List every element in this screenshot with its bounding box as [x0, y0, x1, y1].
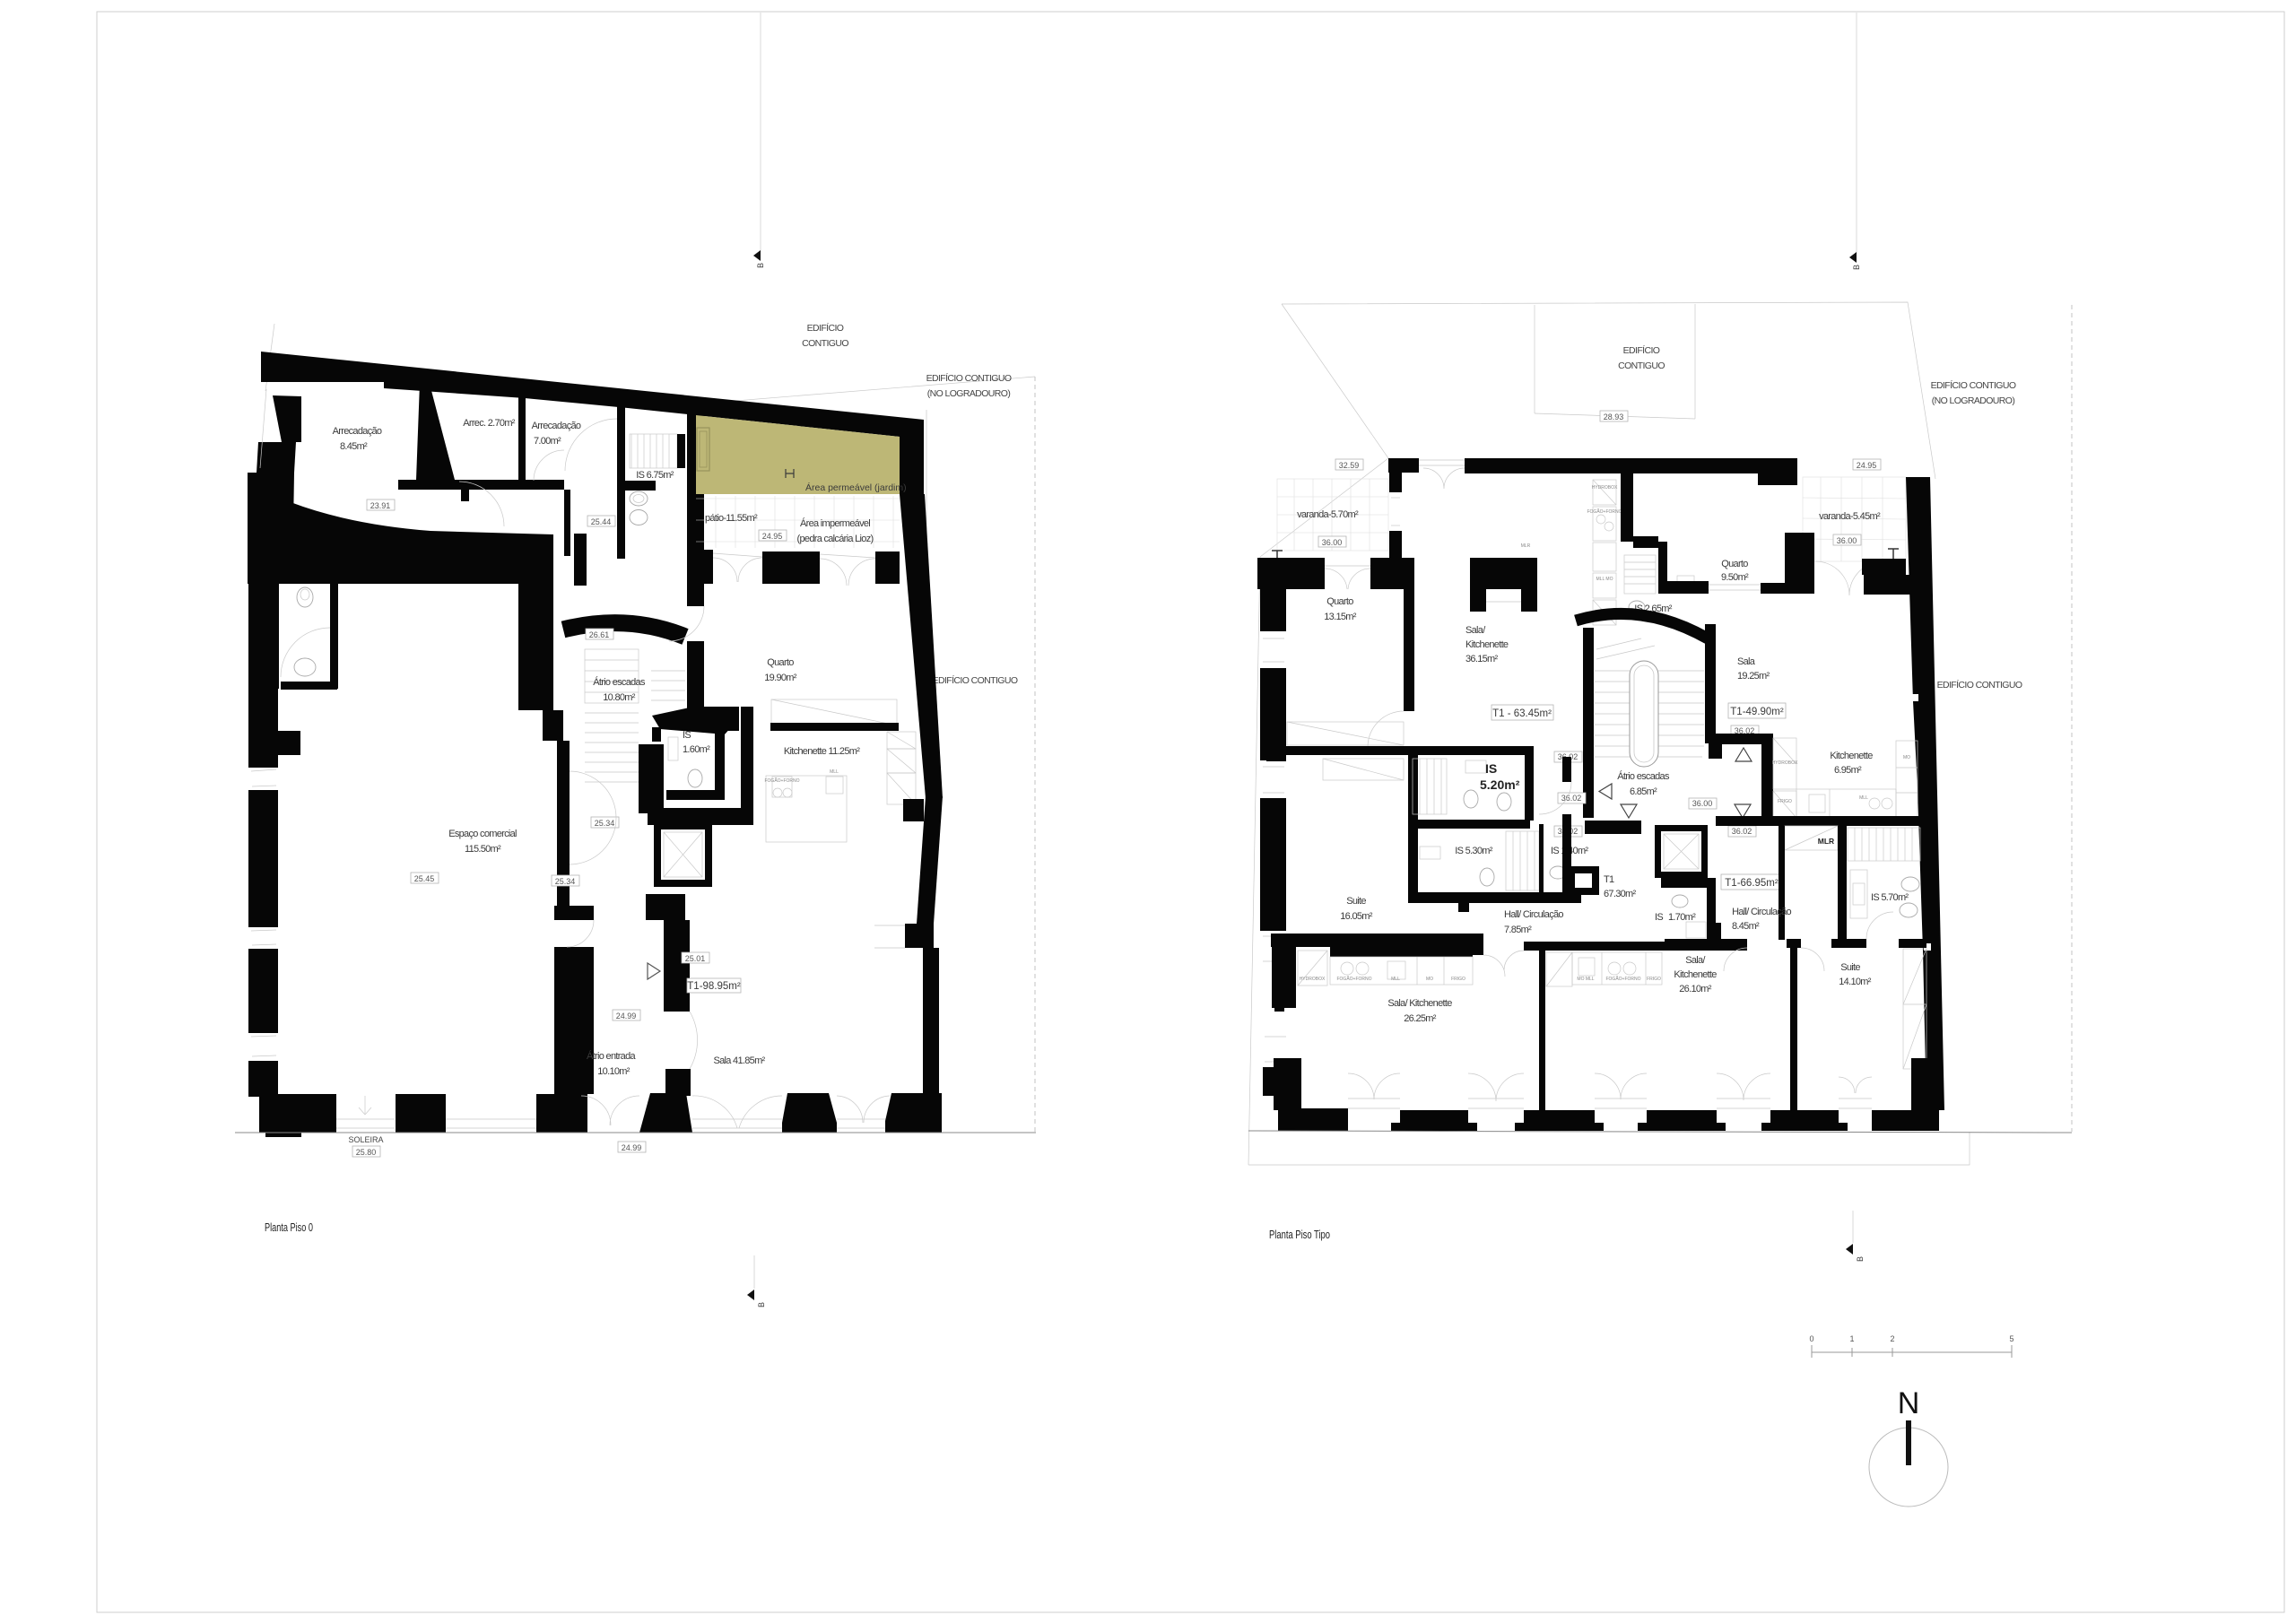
- svg-text:HYDROBOX: HYDROBOX: [1592, 485, 1618, 491]
- svg-text:Hall/ Circulação: Hall/ Circulação: [1504, 909, 1563, 920]
- svg-text:67.30m²: 67.30m²: [1604, 889, 1636, 899]
- svg-text:T1 - 63.45m²: T1 - 63.45m²: [1492, 708, 1552, 719]
- svg-text:Arrecadação: Arrecadação: [333, 426, 382, 437]
- svg-text:IS: IS: [1655, 912, 1663, 923]
- svg-text:Átrio escadas: Átrio escadas: [593, 676, 646, 688]
- svg-text:25.34: 25.34: [555, 877, 576, 886]
- svg-text:(NO LOGRADOURO): (NO LOGRADOURO): [1932, 395, 2015, 406]
- svg-text:25.01: 25.01: [685, 954, 706, 963]
- svg-text:Suite: Suite: [1346, 896, 1366, 907]
- svg-text:Planta Piso 0: Planta Piso 0: [265, 1220, 313, 1234]
- svg-text:Sala: Sala: [1737, 656, 1756, 667]
- svg-text:Hall/ Circulação: Hall/ Circulação: [1732, 907, 1791, 917]
- svg-text:Arrecadação: Arrecadação: [532, 421, 581, 431]
- svg-text:EDIFÍCIO CONTIGUO: EDIFÍCIO CONTIGUO: [1937, 679, 2022, 690]
- svg-text:25.34: 25.34: [595, 819, 615, 828]
- svg-text:Kitchenette: Kitchenette: [1674, 969, 1717, 980]
- svg-text:Área permeável (jardim): Área permeável (jardim): [805, 482, 907, 493]
- svg-text:(pedra calcária Lioz): (pedra calcária Lioz): [797, 534, 874, 544]
- svg-text:Kitchenette: Kitchenette: [1830, 751, 1873, 761]
- svg-text:Átrio entrada: Átrio entrada: [587, 1050, 636, 1062]
- svg-text:MLL: MLL: [1391, 977, 1400, 982]
- svg-text:EDIFÍCIO: EDIFÍCIO: [807, 322, 844, 334]
- svg-text:Kitchenette: Kitchenette: [1465, 639, 1509, 650]
- svg-text:Arrec. 2.70m²: Arrec. 2.70m²: [463, 418, 516, 429]
- svg-text:T1: T1: [1604, 874, 1614, 885]
- svg-text:14.10m²: 14.10m²: [1839, 977, 1871, 987]
- svg-text:SOLEIRA: SOLEIRA: [348, 1135, 383, 1144]
- svg-text:EDIFÍCIO CONTIGUO: EDIFÍCIO CONTIGUO: [1931, 379, 2016, 391]
- svg-text:FOGÃO+FORNO: FOGÃO+FORNO: [1336, 976, 1371, 982]
- svg-text:19.25m²: 19.25m²: [1737, 671, 1770, 682]
- svg-text:0: 0: [1809, 1334, 1813, 1343]
- svg-text:Suite: Suite: [1840, 962, 1860, 973]
- svg-text:Kitchenette 11.25m²: Kitchenette 11.25m²: [784, 746, 860, 757]
- svg-text:24.95: 24.95: [762, 532, 783, 541]
- svg-text:2: 2: [1890, 1334, 1894, 1343]
- svg-text:CONTIGUO: CONTIGUO: [1618, 360, 1665, 371]
- svg-text:HYDROBOX: HYDROBOX: [1772, 760, 1798, 766]
- svg-text:24.99: 24.99: [616, 1012, 637, 1020]
- svg-text:MO: MO: [1903, 755, 1910, 760]
- svg-text:HYDROBOX: HYDROBOX: [1300, 977, 1326, 982]
- svg-text:(NO LOGRADOURO): (NO LOGRADOURO): [927, 388, 1011, 399]
- svg-text:Quarto: Quarto: [1326, 596, 1353, 607]
- svg-text:Sala/ Kitchenette: Sala/ Kitchenette: [1387, 998, 1452, 1009]
- svg-text:MO MLL: MO MLL: [1577, 977, 1594, 982]
- svg-text:10.10m²: 10.10m²: [597, 1066, 630, 1077]
- svg-text:Área impermeável: Área impermeável: [800, 517, 870, 529]
- svg-text:115.50m²: 115.50m²: [465, 844, 501, 855]
- svg-text:MLL: MLL: [830, 769, 839, 775]
- svg-text:IS 5.30m²: IS 5.30m²: [1455, 846, 1492, 856]
- svg-text:6.85m²: 6.85m²: [1630, 786, 1657, 797]
- svg-text:B: B: [757, 1302, 766, 1307]
- svg-text:EDIFÍCIO: EDIFÍCIO: [1623, 344, 1660, 356]
- svg-text:IS: IS: [683, 730, 691, 741]
- svg-text:varanda-5.45m²: varanda-5.45m²: [1819, 511, 1881, 522]
- svg-text:Sala 41.85m²: Sala 41.85m²: [713, 1055, 765, 1066]
- svg-text:Espaço comercial: Espaço comercial: [448, 829, 517, 839]
- svg-text:36.15m²: 36.15m²: [1465, 654, 1498, 664]
- svg-text:FRIGO: FRIGO: [1451, 977, 1465, 982]
- svg-text:Sala/: Sala/: [1685, 955, 1706, 966]
- svg-text:Quarto: Quarto: [1721, 559, 1748, 569]
- svg-text:5.20m²: 5.20m²: [1480, 777, 1520, 792]
- svg-text:FOGÃO+FORNO: FOGÃO+FORNO: [764, 777, 799, 784]
- svg-text:25.80: 25.80: [356, 1148, 377, 1157]
- svg-text:36.02: 36.02: [1561, 794, 1582, 803]
- svg-text:EDIFÍCIO CONTIGUO: EDIFÍCIO CONTIGUO: [926, 372, 1012, 384]
- svg-text:FRIGO: FRIGO: [1647, 977, 1661, 982]
- svg-text:IS: IS: [1485, 761, 1497, 776]
- svg-text:24.99: 24.99: [622, 1143, 642, 1152]
- svg-text:N: N: [1898, 1386, 1920, 1420]
- svg-text:36.00: 36.00: [1837, 536, 1857, 545]
- svg-text:5: 5: [2009, 1334, 2013, 1343]
- svg-text:CONTIGUO: CONTIGUO: [802, 338, 848, 349]
- svg-text:Planta Piso Tipo: Planta Piso Tipo: [1269, 1228, 1330, 1241]
- svg-text:13.15m²: 13.15m²: [1324, 612, 1356, 622]
- svg-text:25.44: 25.44: [591, 517, 612, 526]
- svg-text:32.59: 32.59: [1339, 461, 1360, 470]
- svg-text:Átrio escadas: Átrio escadas: [1617, 770, 1670, 782]
- svg-text:7.85m²: 7.85m²: [1504, 925, 1532, 935]
- svg-text:Quarto: Quarto: [767, 657, 794, 668]
- svg-text:36.00: 36.00: [1692, 799, 1713, 808]
- svg-text:1: 1: [1849, 1334, 1854, 1343]
- svg-text:10.80m²: 10.80m²: [603, 692, 635, 703]
- svg-text:36.00: 36.00: [1322, 538, 1343, 547]
- svg-text:MLR: MLR: [1818, 837, 1834, 846]
- svg-text:EDIFÍCIO CONTIGUO: EDIFÍCIO CONTIGUO: [933, 674, 1018, 686]
- svg-text:pátio-11.55m²: pátio-11.55m²: [705, 513, 758, 524]
- svg-text:FOGÃO+FORNO: FOGÃO+FORNO: [1605, 976, 1640, 982]
- svg-text:28.93: 28.93: [1604, 413, 1624, 421]
- svg-text:IS 5.70m²: IS 5.70m²: [1871, 892, 1909, 903]
- svg-text:Sala/: Sala/: [1465, 625, 1486, 636]
- svg-text:MO: MO: [1426, 977, 1433, 982]
- svg-text:7.00m²: 7.00m²: [534, 436, 561, 447]
- svg-text:1.70m²: 1.70m²: [1668, 912, 1696, 923]
- svg-text:B: B: [1856, 1256, 1865, 1262]
- svg-text:26.10m²: 26.10m²: [1679, 984, 1711, 994]
- svg-text:26.25m²: 26.25m²: [1404, 1013, 1436, 1024]
- svg-text:B: B: [1852, 265, 1861, 270]
- svg-text:varanda-5.70m²: varanda-5.70m²: [1297, 509, 1359, 520]
- svg-text:T1-66.95m²: T1-66.95m²: [1725, 878, 1779, 889]
- svg-text:16.05m²: 16.05m²: [1340, 911, 1372, 922]
- svg-text:8.45m²: 8.45m²: [340, 441, 368, 452]
- svg-text:B: B: [756, 263, 765, 268]
- svg-text:FRIGO: FRIGO: [1778, 799, 1792, 804]
- svg-text:26.61: 26.61: [589, 630, 610, 639]
- svg-text:23.91: 23.91: [370, 501, 391, 510]
- svg-text:IS 6.75m²: IS 6.75m²: [636, 470, 674, 481]
- svg-text:MLL MO: MLL MO: [1596, 577, 1613, 582]
- svg-text:MLL: MLL: [1859, 795, 1868, 801]
- svg-text:19.90m²: 19.90m²: [764, 673, 796, 683]
- svg-text:24.95: 24.95: [1857, 461, 1877, 470]
- svg-text:6.95m²: 6.95m²: [1834, 765, 1862, 776]
- svg-text:9.50m²: 9.50m²: [1721, 572, 1749, 583]
- svg-text:MLR: MLR: [1521, 543, 1531, 549]
- svg-text:T1-49.90m²: T1-49.90m²: [1730, 707, 1784, 717]
- svg-text:T1-98.95m²: T1-98.95m²: [687, 981, 741, 992]
- svg-text:36.02: 36.02: [1732, 827, 1752, 836]
- svg-text:8.45m²: 8.45m²: [1732, 921, 1760, 932]
- svg-text:1.60m²: 1.60m²: [683, 744, 710, 755]
- svg-text:FOGÃO+FORNO: FOGÃO+FORNO: [1587, 508, 1622, 515]
- svg-text:25.45: 25.45: [414, 874, 435, 883]
